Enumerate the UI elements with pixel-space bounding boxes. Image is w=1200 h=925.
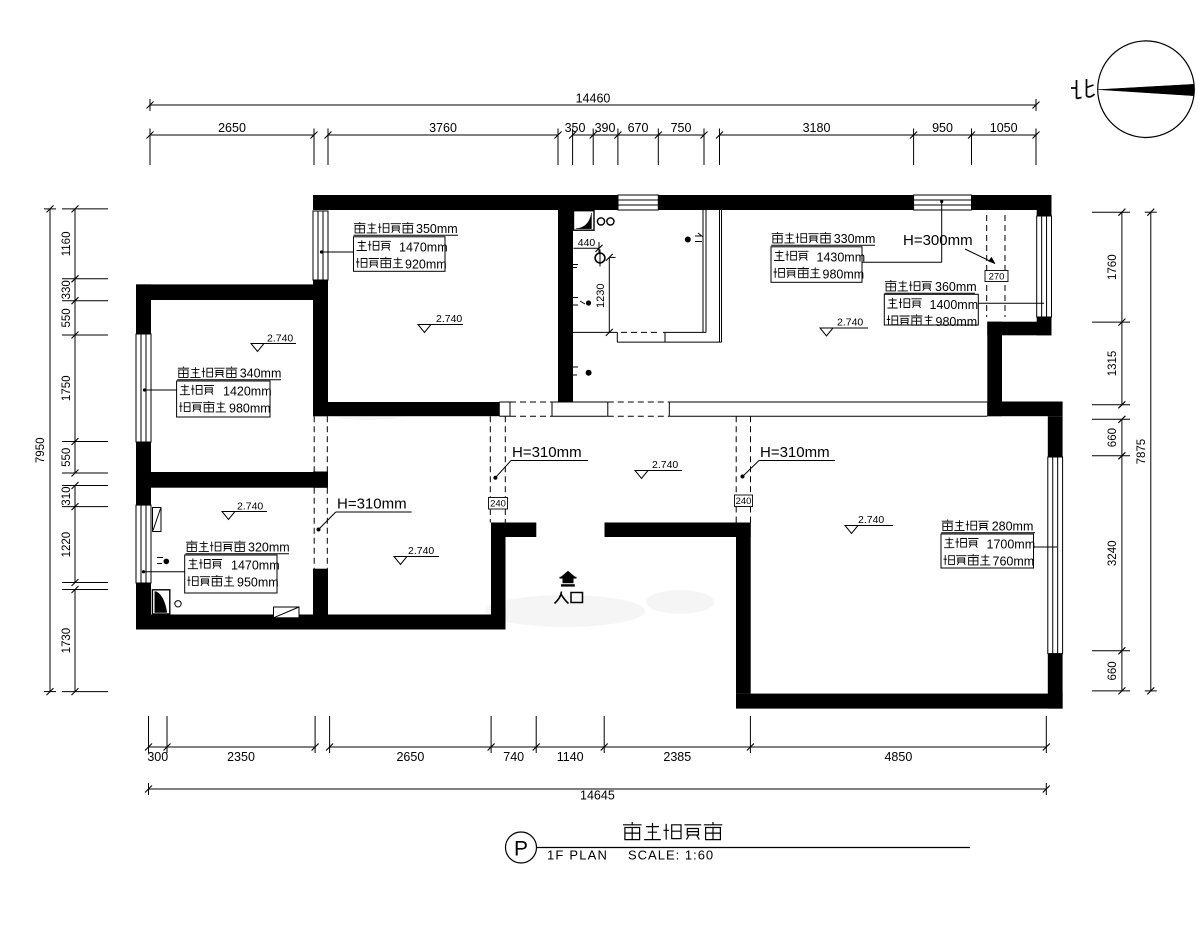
svg-text:1315: 1315 xyxy=(1107,351,1119,377)
svg-text:7875: 7875 xyxy=(1136,439,1148,465)
svg-text:240: 240 xyxy=(490,499,506,510)
svg-text:950mm: 950mm xyxy=(237,576,279,590)
svg-text:2.740: 2.740 xyxy=(436,313,462,325)
svg-text:H=310mm: H=310mm xyxy=(512,444,582,461)
svg-text:2.740: 2.740 xyxy=(267,333,293,345)
svg-text:2350: 2350 xyxy=(227,750,255,764)
svg-text:1220: 1220 xyxy=(61,532,73,558)
svg-text:H=310mm: H=310mm xyxy=(337,496,407,513)
svg-text:4850: 4850 xyxy=(884,750,912,764)
svg-text:1470mm: 1470mm xyxy=(399,240,448,254)
svg-text:280mm: 280mm xyxy=(992,520,1034,534)
svg-text:3240: 3240 xyxy=(1107,541,1119,567)
svg-text:2.740: 2.740 xyxy=(408,545,434,557)
svg-text:1400mm: 1400mm xyxy=(930,298,979,312)
svg-text:330mm: 330mm xyxy=(834,232,876,246)
svg-text:670: 670 xyxy=(628,121,649,135)
svg-text:550: 550 xyxy=(61,308,73,327)
svg-text:760mm: 760mm xyxy=(993,555,1035,569)
svg-text:980mm: 980mm xyxy=(229,402,271,416)
svg-text:1140: 1140 xyxy=(557,750,584,764)
svg-text:310: 310 xyxy=(61,487,73,506)
svg-text:390: 390 xyxy=(595,121,616,135)
svg-text:2.740: 2.740 xyxy=(237,501,263,513)
svg-text:P: P xyxy=(514,838,528,861)
svg-text:7950: 7950 xyxy=(35,438,47,464)
svg-text:1230: 1230 xyxy=(595,284,607,308)
svg-text:SCALE: 1:60: SCALE: 1:60 xyxy=(628,848,714,863)
svg-text:1420mm: 1420mm xyxy=(223,385,272,399)
svg-text:920mm: 920mm xyxy=(405,257,447,271)
svg-text:660: 660 xyxy=(1107,428,1119,447)
svg-text:2.740: 2.740 xyxy=(837,317,863,329)
svg-text:14645: 14645 xyxy=(580,789,615,803)
svg-text:3180: 3180 xyxy=(803,121,831,135)
svg-text:2.740: 2.740 xyxy=(652,459,678,471)
svg-text:1430mm: 1430mm xyxy=(817,250,866,264)
svg-text:1760: 1760 xyxy=(1107,254,1119,280)
svg-text:740: 740 xyxy=(503,750,524,764)
svg-text:14460: 14460 xyxy=(576,92,611,106)
svg-text:2650: 2650 xyxy=(396,750,424,764)
svg-text:950: 950 xyxy=(932,121,953,135)
svg-text:1050: 1050 xyxy=(990,121,1018,135)
svg-text:350: 350 xyxy=(565,121,586,135)
svg-text:270: 270 xyxy=(989,272,1005,283)
svg-text:300: 300 xyxy=(147,750,168,764)
svg-text:350mm: 350mm xyxy=(416,222,458,236)
svg-text:980mm: 980mm xyxy=(823,267,865,281)
svg-text:2650: 2650 xyxy=(218,121,246,135)
svg-text:980mm: 980mm xyxy=(936,315,978,329)
svg-text:320mm: 320mm xyxy=(248,541,290,555)
svg-text:1750: 1750 xyxy=(61,376,73,402)
svg-text:1470mm: 1470mm xyxy=(231,559,280,573)
svg-text:240: 240 xyxy=(736,496,752,507)
svg-text:340mm: 340mm xyxy=(240,367,282,381)
svg-text:H=310mm: H=310mm xyxy=(760,444,830,461)
svg-text:550: 550 xyxy=(61,448,73,467)
svg-text:330: 330 xyxy=(61,280,73,299)
svg-text:2.740: 2.740 xyxy=(858,514,884,526)
svg-text:1160: 1160 xyxy=(61,232,73,257)
svg-text:660: 660 xyxy=(1107,661,1119,680)
svg-text:440: 440 xyxy=(578,237,596,249)
svg-text:1730: 1730 xyxy=(61,628,73,654)
svg-text:3760: 3760 xyxy=(429,121,457,135)
svg-text:H=300mm: H=300mm xyxy=(903,232,973,249)
svg-text:1F PLAN: 1F PLAN xyxy=(547,848,608,863)
svg-text:1700mm: 1700mm xyxy=(987,538,1036,552)
svg-text:2385: 2385 xyxy=(663,750,691,764)
svg-text:360mm: 360mm xyxy=(935,280,977,294)
svg-text:750: 750 xyxy=(671,121,692,135)
